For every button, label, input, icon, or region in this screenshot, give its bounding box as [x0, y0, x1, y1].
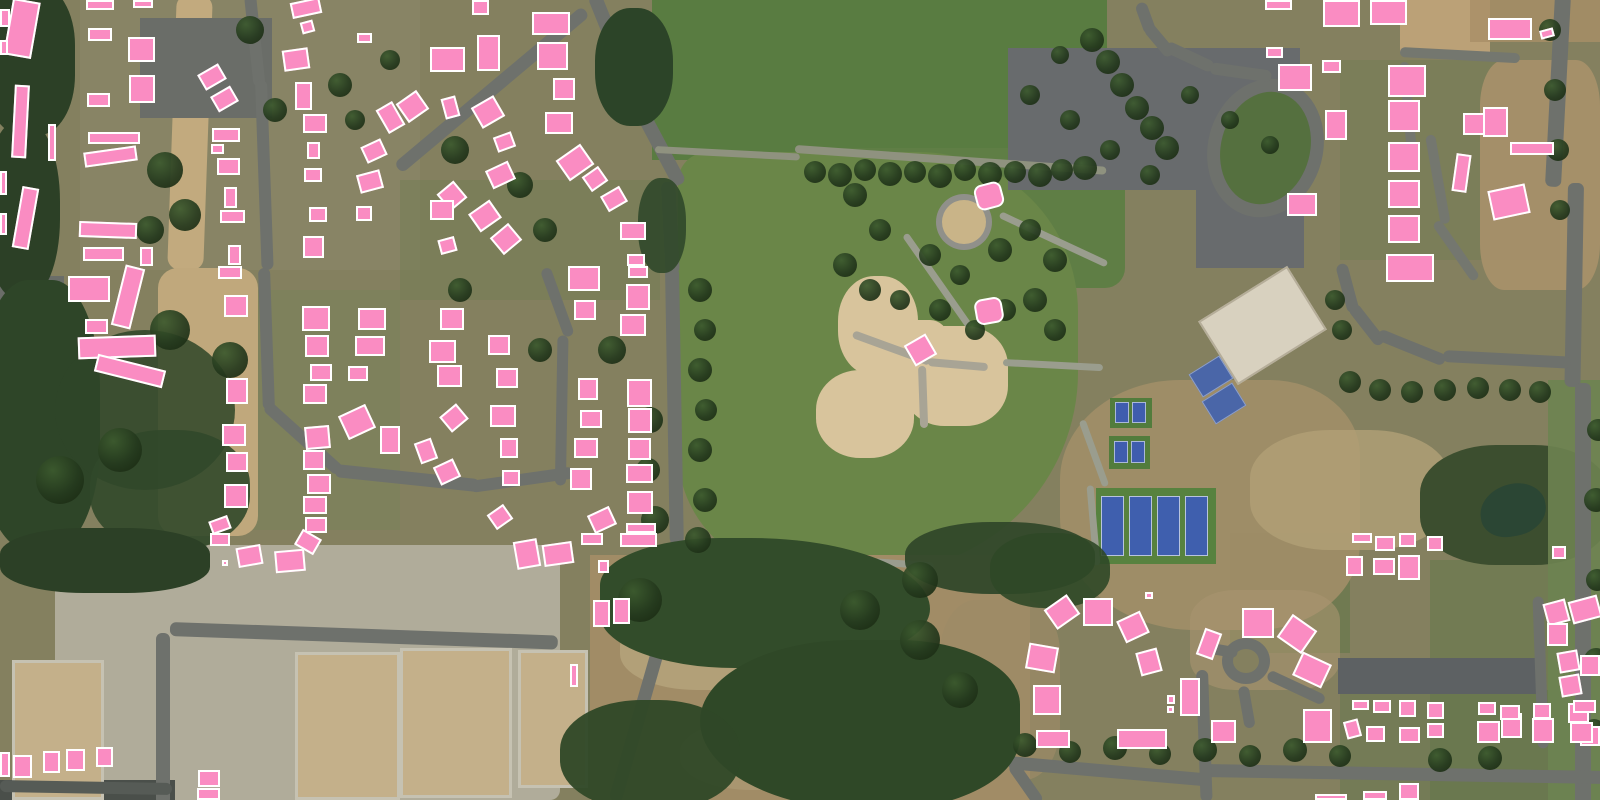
building-annotation — [620, 314, 646, 336]
building-annotation — [83, 247, 124, 261]
building-annotation — [437, 365, 462, 387]
building-annotation — [88, 28, 112, 41]
building-annotation — [553, 78, 575, 100]
building-annotation — [282, 47, 311, 71]
tree-icon — [1339, 371, 1361, 393]
building-annotation — [1388, 180, 1420, 208]
building-annotation — [198, 770, 220, 787]
building-annotation — [1386, 254, 1434, 282]
building-annotation — [496, 368, 518, 388]
tree-icon — [98, 428, 142, 472]
tree-icon — [1261, 136, 1279, 154]
road — [156, 633, 170, 800]
building-annotation — [1427, 702, 1444, 719]
building-annotation — [487, 504, 514, 530]
building-annotation — [490, 405, 516, 427]
building-annotation — [0, 752, 10, 777]
building-annotation — [1325, 110, 1347, 140]
mound-lot-1 — [12, 660, 104, 800]
building-annotation — [304, 168, 322, 182]
tree-icon — [1013, 733, 1037, 757]
tree-icon — [212, 342, 248, 378]
building-annotation — [1399, 533, 1416, 547]
tree-icon — [1100, 140, 1120, 160]
building-annotation — [1556, 649, 1580, 673]
tree-icon — [869, 219, 891, 241]
tree-icon — [919, 244, 941, 266]
building-annotation — [303, 236, 324, 258]
building-annotation — [620, 533, 657, 547]
building-annotation — [628, 266, 648, 278]
building-annotation — [79, 221, 138, 239]
building-annotation — [1483, 107, 1508, 137]
building-annotation — [1370, 0, 1407, 25]
building-annotation — [85, 319, 108, 334]
building-annotation — [439, 403, 469, 432]
building-annotation — [303, 114, 327, 133]
tennis-court-1 — [1101, 496, 1124, 556]
building-annotation — [87, 93, 110, 107]
building-annotation — [1399, 700, 1416, 717]
building-annotation — [13, 755, 32, 778]
building-annotation — [1346, 556, 1363, 576]
building-annotation — [355, 336, 385, 356]
building-annotation — [613, 598, 630, 624]
tree-icon — [1004, 161, 1026, 183]
building-annotation — [1025, 643, 1059, 674]
building-annotation — [578, 378, 598, 400]
building-annotation — [1278, 64, 1312, 91]
building-annotation — [1167, 706, 1174, 713]
tree-icon — [840, 590, 880, 630]
parking-lane-bottom-right — [1338, 658, 1543, 694]
annotated-aerial-image — [0, 0, 1600, 800]
mound-lot-3 — [400, 648, 512, 798]
building-annotation — [303, 384, 327, 404]
building-annotation — [128, 37, 155, 62]
building-annotation — [1366, 726, 1385, 742]
building-annotation — [627, 254, 645, 266]
tree-icon — [1478, 746, 1502, 770]
building-annotation — [532, 12, 570, 35]
building-annotation — [1167, 695, 1175, 704]
building-annotation — [1265, 0, 1292, 10]
tree-icon — [950, 265, 970, 285]
tree-icon — [942, 672, 978, 708]
forest-bottom-center-3 — [560, 700, 740, 800]
building-annotation — [627, 379, 652, 407]
tree-icon — [1325, 290, 1345, 310]
building-annotation — [1573, 700, 1596, 713]
building-annotation — [1363, 791, 1387, 800]
building-annotation — [78, 335, 157, 360]
mound-lot-2 — [295, 652, 400, 800]
building-annotation — [48, 124, 56, 161]
building-annotation — [274, 549, 306, 574]
building-annotation — [472, 0, 489, 15]
tennis-court-4 — [1185, 496, 1208, 556]
forest-w5 — [0, 528, 210, 593]
building-annotation — [218, 266, 242, 279]
tree-icon — [1401, 381, 1423, 403]
building-annotation — [357, 33, 372, 43]
tree-icon — [1544, 79, 1566, 101]
building-annotation — [580, 410, 602, 428]
building-annotation — [430, 47, 465, 72]
building-annotation — [217, 158, 240, 175]
building-annotation — [440, 308, 464, 330]
tree-icon — [1023, 288, 1047, 312]
building-annotation — [303, 496, 327, 514]
tree-icon — [448, 278, 472, 302]
building-annotation — [1558, 673, 1582, 697]
building-annotation — [626, 523, 656, 533]
building-annotation — [226, 378, 248, 404]
building-annotation — [1266, 47, 1283, 58]
building-annotation — [197, 788, 220, 800]
building-annotation — [1388, 65, 1426, 97]
building-annotation — [1488, 18, 1532, 40]
building-annotation — [140, 247, 153, 266]
building-annotation — [1352, 700, 1369, 710]
building-annotation — [226, 452, 248, 472]
building-annotation — [1398, 555, 1420, 580]
building-annotation — [88, 132, 140, 144]
tree-icon — [36, 456, 84, 504]
building-annotation — [224, 187, 237, 208]
tree-icon — [1051, 46, 1069, 64]
building-annotation — [133, 0, 153, 8]
building-annotation — [1373, 558, 1395, 575]
tree-icon — [236, 16, 264, 44]
building-annotation — [1533, 703, 1551, 719]
tree-icon — [1073, 156, 1097, 180]
tree-icon — [904, 161, 926, 183]
forest-top-center — [595, 8, 673, 126]
building-annotation — [1552, 546, 1566, 559]
building-annotation — [222, 424, 246, 446]
tree-icon — [441, 136, 469, 164]
building-annotation — [68, 276, 110, 302]
building-annotation — [1323, 0, 1360, 27]
building-annotation — [1388, 142, 1420, 172]
building-annotation — [1570, 722, 1593, 743]
building-annotation — [1427, 723, 1444, 738]
building-annotation — [1322, 60, 1341, 73]
building-annotation — [304, 425, 331, 450]
pickleball-court-2b — [1131, 441, 1145, 463]
tree-icon — [1428, 748, 1452, 772]
building-annotation — [429, 340, 456, 363]
building-annotation — [1388, 215, 1420, 243]
building-annotation — [513, 538, 541, 570]
tree-icon — [688, 358, 712, 382]
building-annotation — [1145, 592, 1153, 599]
building-annotation — [502, 470, 520, 486]
building-annotation — [0, 9, 10, 27]
tree-icon — [1499, 379, 1521, 401]
tree-icon — [1529, 381, 1551, 403]
tree-icon — [890, 290, 910, 310]
road — [555, 335, 569, 485]
tree-icon — [900, 620, 940, 660]
building-annotation — [537, 42, 568, 70]
building-annotation — [0, 213, 7, 235]
building-annotation — [545, 112, 573, 134]
building-annotation — [380, 426, 400, 454]
tree-icon — [1051, 159, 1073, 181]
tree-icon — [1060, 110, 1080, 130]
building-annotation — [295, 82, 312, 110]
building-annotation — [1580, 655, 1600, 676]
tree-icon — [1467, 377, 1489, 399]
building-annotation — [593, 600, 610, 627]
building-annotation — [1242, 608, 1274, 638]
building-annotation — [628, 408, 652, 433]
building-annotation — [627, 491, 653, 514]
tree-icon — [169, 199, 201, 231]
building-annotation — [488, 335, 510, 355]
tree-icon — [688, 438, 712, 462]
building-annotation — [626, 464, 653, 483]
building-annotation — [587, 506, 617, 534]
tree-icon — [533, 218, 557, 242]
building-annotation — [1478, 702, 1496, 715]
tree-icon — [1369, 379, 1391, 401]
tree-icon — [1096, 50, 1120, 74]
building-annotation — [414, 438, 438, 465]
building-annotation — [348, 366, 368, 381]
building-annotation — [1547, 623, 1568, 646]
tree-icon — [878, 162, 902, 186]
tree-icon — [685, 527, 711, 553]
building-annotation — [96, 747, 113, 767]
building-annotation — [477, 35, 500, 71]
road — [1376, 328, 1447, 366]
building-annotation — [1399, 727, 1420, 743]
building-annotation — [1352, 533, 1372, 543]
tree-icon — [528, 338, 552, 362]
tree-icon — [859, 279, 881, 301]
tree-icon — [1028, 163, 1052, 187]
building-annotation — [1033, 685, 1061, 715]
building-annotation — [0, 40, 8, 55]
building-annotation — [1135, 648, 1162, 677]
building-annotation — [43, 751, 60, 773]
building-annotation — [500, 438, 518, 458]
tree-icon — [828, 163, 852, 187]
tree-icon — [988, 238, 1012, 262]
building-annotation — [1083, 598, 1113, 626]
building-annotation — [441, 95, 461, 119]
building-annotation — [66, 749, 85, 771]
building-annotation — [307, 474, 331, 494]
culdesac-ring — [1222, 638, 1270, 684]
building-annotation — [626, 284, 650, 310]
building-annotation — [1036, 730, 1070, 748]
building-annotation — [628, 438, 651, 460]
building-annotation — [1477, 721, 1500, 743]
building-annotation — [568, 266, 600, 291]
building-annotation — [224, 295, 248, 317]
tree-icon — [688, 278, 712, 302]
forest-bottom-center-2 — [700, 640, 1020, 800]
building-annotation — [309, 207, 327, 222]
road — [1007, 756, 1209, 787]
tree-icon — [833, 253, 857, 277]
tree-icon — [1332, 320, 1352, 340]
tree-icon — [843, 183, 867, 207]
building-annotation — [1463, 113, 1485, 135]
building-annotation — [307, 142, 320, 159]
building-annotation — [302, 306, 330, 331]
tree-icon — [1239, 745, 1261, 767]
tree-icon — [1043, 248, 1067, 272]
tree-icon — [136, 216, 164, 244]
building-annotation — [1500, 705, 1520, 720]
building-annotation — [220, 210, 245, 223]
tree-icon — [1140, 116, 1164, 140]
building-annotation — [305, 335, 329, 357]
building-annotation — [235, 544, 263, 568]
building-annotation — [0, 171, 7, 195]
building-annotation — [1388, 100, 1420, 132]
tree-icon — [1125, 96, 1149, 120]
building-annotation — [1180, 678, 1200, 716]
building-annotation — [542, 541, 575, 567]
tree-icon — [694, 319, 716, 341]
building-annotation — [211, 144, 224, 154]
building-annotation — [356, 206, 372, 221]
building-annotation — [598, 560, 609, 573]
tree-icon — [1434, 379, 1456, 401]
building-annotation — [430, 200, 454, 220]
building-annotation — [493, 131, 516, 153]
tree-icon — [1020, 85, 1040, 105]
tree-icon — [263, 98, 287, 122]
tree-icon — [928, 164, 952, 188]
building-annotation — [1287, 193, 1317, 216]
tree-icon — [804, 161, 826, 183]
pickleball-court-2a — [1114, 441, 1128, 463]
building-annotation — [310, 364, 332, 381]
building-annotation — [111, 265, 145, 330]
tree-icon — [1110, 73, 1134, 97]
building-annotation — [1211, 720, 1236, 743]
forest-tennis-edge — [990, 533, 1110, 608]
tree-icon — [1221, 111, 1239, 129]
tree-icon — [695, 399, 717, 421]
tree-icon — [1550, 200, 1570, 220]
tree-icon — [954, 159, 976, 181]
building-annotation — [228, 245, 241, 265]
tree-icon — [147, 152, 183, 188]
building-annotation — [1303, 709, 1332, 743]
road — [1238, 685, 1256, 728]
building-annotation — [86, 0, 114, 10]
tree-icon — [929, 299, 951, 321]
building-annotation — [1117, 729, 1167, 749]
building-annotation — [305, 517, 327, 533]
tree-icon — [328, 73, 352, 97]
tree-icon — [693, 488, 717, 512]
tree-icon — [1155, 136, 1179, 160]
building-annotation — [210, 533, 230, 546]
building-annotation — [222, 560, 228, 566]
building-annotation — [570, 468, 592, 490]
road — [1443, 350, 1571, 369]
tree-icon — [1044, 319, 1066, 341]
building-annotation — [1532, 718, 1554, 743]
tree-icon — [380, 50, 400, 70]
building-annotation — [212, 128, 240, 142]
building-annotation — [224, 484, 248, 508]
tree-icon — [902, 562, 938, 598]
pickleball-court-1a — [1115, 402, 1129, 423]
tennis-court-3 — [1157, 496, 1180, 556]
tree-icon — [854, 159, 876, 181]
building-annotation — [574, 438, 598, 458]
building-annotation — [358, 308, 386, 330]
pickleball-court-1b — [1132, 402, 1146, 423]
building-annotation — [581, 533, 603, 545]
building-annotation — [574, 300, 596, 320]
building-annotation — [570, 664, 578, 687]
tree-icon — [1019, 219, 1041, 241]
tree-icon — [1080, 28, 1104, 52]
tree-icon — [1329, 745, 1351, 767]
building-annotation — [1375, 536, 1395, 551]
building-annotation — [1315, 794, 1347, 800]
tree-icon — [150, 310, 190, 350]
building-annotation — [1427, 536, 1443, 551]
building-annotation — [129, 75, 155, 103]
building-annotation — [303, 450, 325, 470]
tennis-court-2 — [1129, 496, 1152, 556]
tree-icon — [598, 336, 626, 364]
building-annotation — [1510, 142, 1554, 155]
building-annotation — [1373, 700, 1391, 713]
tree-icon — [1140, 165, 1160, 185]
tree-icon — [345, 110, 365, 130]
building-annotation — [1399, 783, 1419, 800]
tree-icon — [1181, 86, 1199, 104]
building-annotation — [620, 222, 646, 240]
